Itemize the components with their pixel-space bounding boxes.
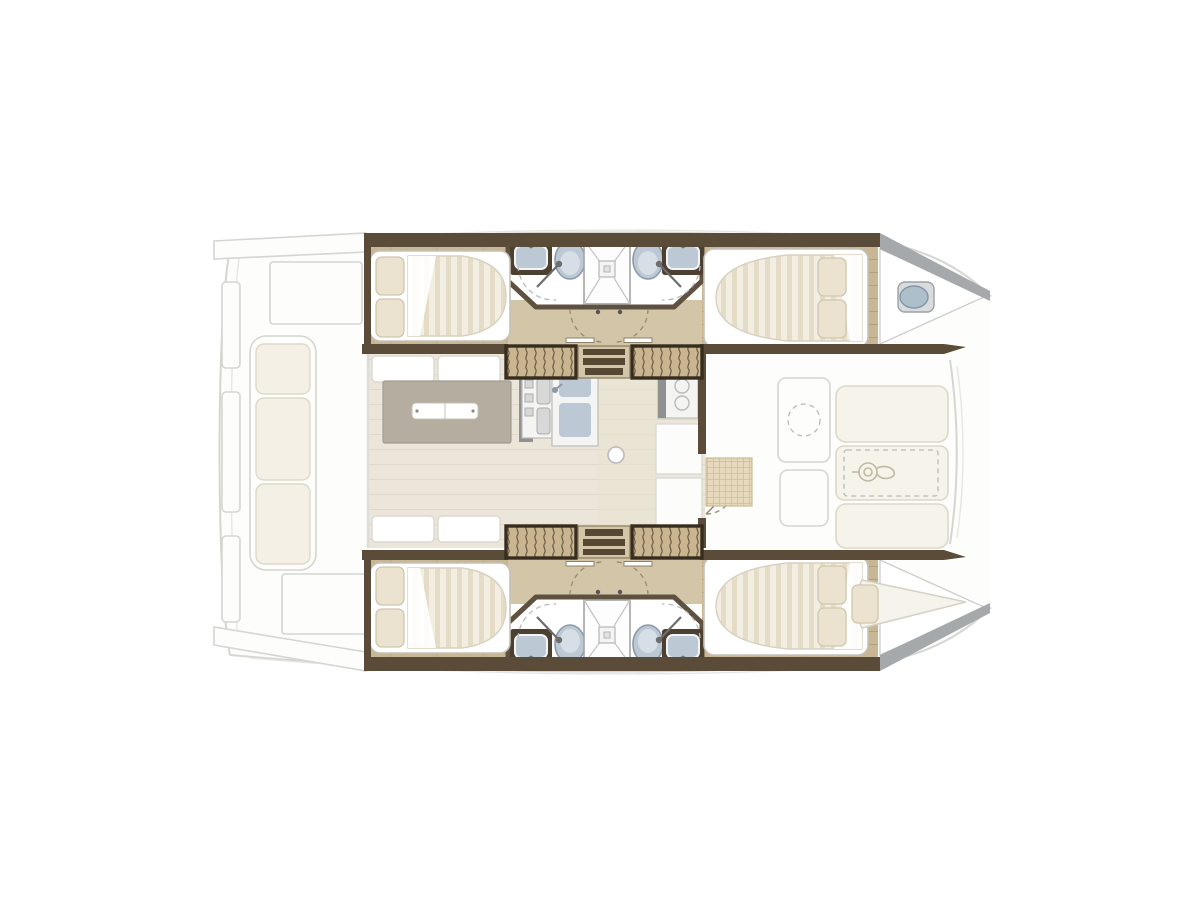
floorplan-canvas <box>0 0 1200 900</box>
galley-sink <box>552 368 598 446</box>
waste-bin <box>608 447 624 463</box>
storage-locker <box>270 262 362 324</box>
sun-pad <box>836 386 948 442</box>
saloon-sofa <box>438 356 500 382</box>
cockpit-table <box>282 574 366 634</box>
side-locker <box>222 536 240 622</box>
door-panel <box>778 378 830 462</box>
bench-cushion <box>256 398 310 480</box>
saloon-sofa <box>372 516 434 542</box>
anchor-locker <box>836 446 948 500</box>
saloon <box>368 354 752 548</box>
bench-cushion <box>256 344 310 394</box>
saloon-table <box>383 381 511 443</box>
floorplan-page <box>0 0 1200 900</box>
side-locker <box>222 282 240 368</box>
pillow <box>852 585 878 623</box>
foredeck-seat <box>780 470 828 526</box>
walkway <box>598 354 658 548</box>
cockpit-bench <box>250 336 316 570</box>
bow-washbasin <box>898 282 934 312</box>
deck-mat <box>706 458 752 506</box>
galley-cabinet <box>656 424 702 474</box>
sun-pad <box>836 504 948 548</box>
saloon-sofa <box>372 356 434 382</box>
side-locker <box>222 392 240 512</box>
saloon-sofa <box>438 516 500 542</box>
bench-cushion <box>256 484 310 564</box>
